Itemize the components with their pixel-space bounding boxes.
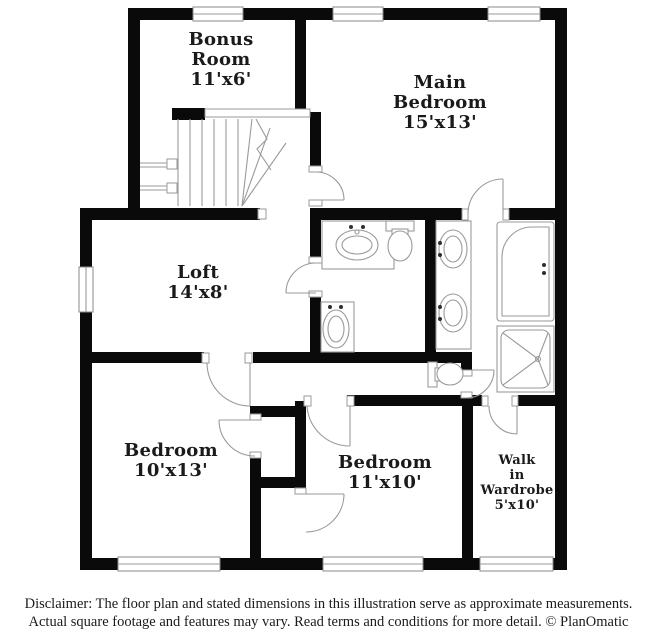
room-name: Loft [123, 263, 273, 283]
room-dimensions: 14'x8' [123, 283, 273, 303]
room-name: Bedroom [96, 441, 246, 461]
room-name: Bonus [146, 30, 296, 50]
toilet-icon [428, 362, 463, 387]
disclaimer: Disclaimer: The floor plan and stated di… [0, 595, 657, 631]
door-icon [461, 370, 494, 398]
room-name: Main [365, 73, 515, 93]
window-icon [323, 557, 423, 571]
disclaimer-line-1: Disclaimer: The floor plan and stated di… [0, 595, 657, 613]
room-name: in [467, 468, 567, 483]
sink-icon [322, 221, 394, 269]
door-icon [309, 166, 344, 206]
window-icon [79, 267, 93, 312]
room-label-main-bedroom: Main Bedroom 15'x13' [365, 73, 515, 133]
window-icon [480, 557, 553, 571]
room-name: Walk [467, 453, 567, 468]
room-dimensions: 11'x6' [146, 70, 296, 90]
door-icon [462, 179, 509, 220]
shower-icon [497, 326, 554, 392]
room-label-bedroom-10x13: Bedroom 10'x13' [96, 441, 246, 481]
room-label-bedroom-11x10: Bedroom 11'x10' [310, 453, 460, 493]
room-name: Wardrobe [467, 483, 567, 498]
toilet-icon [386, 221, 414, 261]
door-icon [295, 488, 344, 532]
opening-jamb [258, 209, 266, 219]
door-icon [482, 396, 518, 434]
window-icon [488, 7, 540, 21]
double-vanity-icon [436, 221, 471, 349]
window-icon [118, 557, 220, 571]
staircase-icon [140, 109, 310, 206]
door-icon [286, 257, 322, 297]
room-name: Bedroom [365, 93, 515, 113]
room-name: Bedroom [310, 453, 460, 473]
sink-icon [321, 302, 354, 352]
room-dimensions: 15'x13' [365, 113, 515, 133]
fixtures-layer [321, 221, 554, 392]
floorplan-page: Bonus Room 11'x6' Main Bedroom 15'x13' L… [0, 0, 657, 638]
room-label-bonus-room: Bonus Room 11'x6' [146, 30, 296, 90]
room-dimensions: 5'x10' [467, 498, 567, 513]
door-icon [202, 353, 252, 406]
window-icon [193, 7, 243, 21]
room-dimensions: 10'x13' [96, 461, 246, 481]
door-icon [304, 396, 354, 446]
disclaimer-line-2: Actual square footage and features may v… [0, 613, 657, 631]
window-icon [333, 7, 383, 21]
room-label-walk-in-wardrobe: Walk in Wardrobe 5'x10' [467, 453, 567, 513]
room-dimensions: 11'x10' [310, 473, 460, 493]
bathtub-icon [497, 222, 554, 321]
room-name: Room [146, 50, 296, 70]
room-label-loft: Loft 14'x8' [123, 263, 273, 303]
